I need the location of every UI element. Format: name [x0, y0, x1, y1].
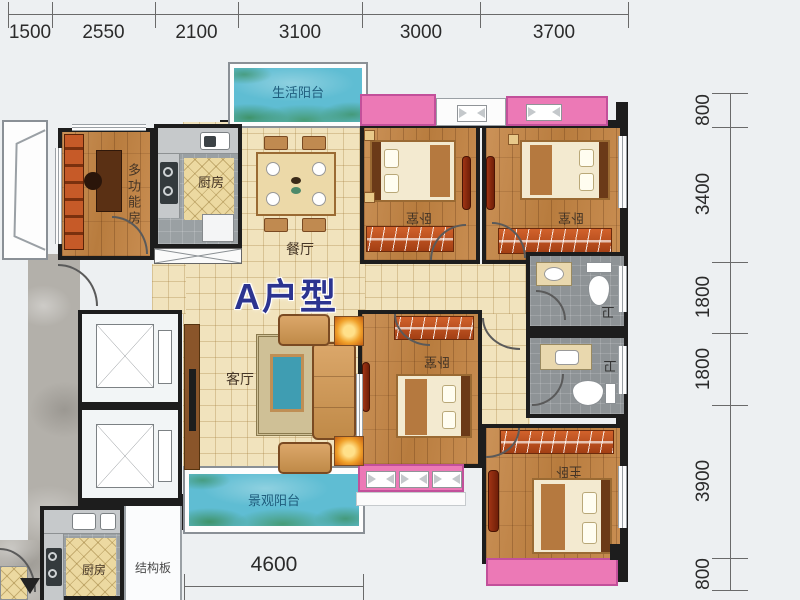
dim-right-label: 800: [693, 84, 715, 136]
pillow: [384, 149, 399, 168]
dim-right-label: 1800: [693, 343, 715, 395]
window-glyph: [526, 104, 562, 121]
elevator-cross: [97, 425, 153, 487]
bed: [520, 140, 610, 200]
window-glyph: [366, 471, 396, 488]
pillow: [442, 385, 456, 403]
dim-right-tick: [712, 333, 748, 334]
stove: [160, 162, 178, 204]
bedroom-c: 卧室: [358, 310, 482, 468]
window: [618, 346, 627, 394]
bed-runner: [530, 145, 552, 195]
entry-floor: [152, 264, 186, 314]
window: [72, 124, 146, 131]
coffee-table: [270, 354, 304, 412]
plate: [266, 192, 280, 206]
dim-right-tick: [712, 93, 748, 94]
kitchen2-sink: [72, 513, 96, 530]
bedroom-a-cabinet: [462, 156, 471, 210]
window-glyph: [432, 471, 462, 488]
bed: [532, 478, 612, 554]
dim-top-label: 3700: [480, 22, 628, 44]
master-bedroom-label: 主卧: [546, 464, 592, 478]
pillow: [582, 492, 597, 514]
dim-top-line: [8, 14, 628, 15]
pillow: [442, 411, 456, 429]
stove-burner: [48, 552, 57, 561]
bath1-sink-counter: [536, 262, 572, 286]
bath2-sink-counter: [540, 344, 592, 370]
dim-top-tick: [628, 2, 629, 28]
toilet-bowl: [588, 275, 610, 306]
dim-right-tick: [712, 405, 748, 406]
nightstand: [364, 192, 375, 203]
structure-slab-label: 结构板: [126, 562, 180, 575]
plate: [312, 192, 326, 206]
nightstand: [364, 130, 375, 141]
bedroom-a-bay-window: [360, 94, 436, 126]
stove-burner: [163, 167, 173, 177]
pillow: [579, 173, 594, 191]
dim-bottom-label: 4600: [184, 554, 364, 578]
stove-burner: [48, 569, 57, 578]
multi-function-room: 多功能房: [58, 128, 154, 260]
elevator-car: [96, 424, 154, 488]
elevator-car: [96, 324, 154, 388]
multi-function-door-arc: [112, 216, 148, 254]
bedroom-b-label: 卧室: [548, 210, 594, 224]
kitchen-neighbor-label: 厨房: [70, 564, 118, 577]
bath2-basin: [555, 350, 579, 365]
window: [618, 266, 627, 312]
kitchen-sink: [200, 132, 230, 150]
top-window-gap: [436, 98, 506, 126]
desk-chair: [84, 172, 102, 190]
dining-table: [256, 152, 336, 216]
dining-chair: [264, 218, 288, 232]
toilet-bowl: [572, 380, 604, 406]
toilet-tank: [586, 262, 612, 273]
bedroom-b-bay-window: [506, 96, 608, 126]
bath1-door-arc: [536, 290, 566, 320]
master-bedroom: 主卧: [482, 424, 624, 564]
bedroom-b: 卧室: [482, 124, 624, 264]
side-table-lamp: [334, 316, 364, 346]
plate: [312, 162, 326, 176]
floor-plan-canvas: 1500 2550 2100 3100 3000 3700 800 3400 1…: [0, 0, 800, 600]
corridor-floor: [365, 264, 530, 314]
elevator-cross: [97, 325, 153, 387]
stove-burner: [163, 186, 173, 196]
dim-right-label: 1800: [693, 271, 715, 323]
elevator-door: [158, 330, 172, 384]
kitchen2-sink: [100, 513, 116, 530]
bathroom-top-label: 卫: [598, 304, 618, 318]
stove2: [46, 548, 62, 586]
kitchen-flue: [154, 248, 242, 264]
life-balcony-label: 生活阳台: [230, 86, 366, 100]
nightstand: [508, 134, 519, 145]
dim-right-tick: [712, 558, 748, 559]
window: [356, 374, 363, 436]
bathroom-top: 卫: [526, 252, 628, 330]
bathroom-bottom-label: 卫: [600, 358, 620, 372]
dim-top-label: 1500: [8, 22, 52, 44]
pillow: [384, 174, 399, 193]
sofa-main: [312, 342, 356, 440]
dim-right-label: 800: [693, 548, 715, 600]
kitchen-neighbor: 厨房: [40, 506, 124, 600]
fridge: [202, 214, 234, 242]
living-label: 客厅: [212, 372, 268, 387]
side-table-lamp: [334, 436, 364, 466]
bedroom-c-bay-window: [358, 464, 464, 492]
structure-slab: 结构板: [124, 506, 182, 600]
tv-cabinet: [184, 324, 200, 470]
bath2-door-arc: [532, 374, 564, 406]
dining-chair: [302, 136, 326, 150]
dim-right-tick: [712, 262, 748, 263]
bedroom-c-label: 卧室: [414, 354, 460, 368]
bath1-basin: [544, 267, 564, 281]
elevator-door: [158, 430, 172, 482]
stairwell-window: [2, 120, 48, 260]
toilet-tank: [605, 383, 616, 404]
elevator-shaft-1: [78, 310, 182, 406]
bed: [396, 374, 472, 438]
master-bay-window: [486, 558, 618, 586]
master-dresser: [488, 470, 499, 532]
view-balcony-label: 景观阳台: [185, 494, 363, 508]
window: [618, 466, 627, 528]
dim-bottom-tick: [363, 574, 364, 600]
dim-top-label: 2550: [52, 22, 155, 44]
stairwell-window-glass: [4, 122, 46, 258]
bedroom-c-cabinet: [362, 362, 370, 412]
dim-right-label: 3400: [693, 168, 715, 220]
dim-bottom-tick: [184, 574, 185, 600]
wall-step: [610, 544, 626, 560]
dim-top-label: 3100: [238, 22, 362, 44]
window: [618, 136, 627, 208]
sofa-armchair: [278, 442, 332, 474]
bed: [370, 140, 456, 202]
unit-type-title: A户型: [208, 268, 364, 320]
bed-runner: [430, 145, 450, 197]
flue-cross: [155, 249, 241, 263]
pillow: [579, 149, 594, 167]
dining-chair: [264, 136, 288, 150]
kitchen-main: 厨房: [154, 124, 242, 248]
wall-bath-divider: [526, 326, 628, 334]
dim-top-label: 3000: [362, 22, 480, 44]
bedroom-a: 卧室: [360, 124, 480, 264]
dining-chair: [302, 218, 326, 232]
pillow: [582, 522, 597, 544]
bedroom-c-bay-sill: [356, 492, 466, 506]
kitchen-main-label: 厨房: [186, 176, 236, 190]
window-glyph: [399, 471, 429, 488]
window-glyph: [457, 105, 487, 122]
dim-right-line: [730, 93, 731, 590]
bed-headboard: [461, 376, 470, 436]
dim-right-label: 3900: [693, 455, 715, 507]
center-dish: [291, 177, 301, 184]
dim-top-label: 2100: [155, 22, 238, 44]
elevator-shaft-2: [78, 406, 182, 502]
center-dish: [291, 187, 301, 194]
tv: [189, 369, 196, 431]
bedroom-a-label: 卧室: [396, 210, 442, 224]
dim-bottom-line: [184, 586, 364, 587]
direction-triangle: [20, 578, 40, 594]
view-balcony: 景观阳台: [183, 466, 365, 534]
dining-label: 餐厅: [270, 242, 330, 257]
bookshelf: [64, 134, 84, 250]
bed-headboard: [601, 480, 610, 552]
dim-right-tick: [712, 590, 748, 591]
sink-basin: [204, 136, 216, 147]
bed-headboard: [599, 142, 608, 198]
dim-right-tick: [712, 127, 748, 128]
life-balcony: 生活阳台: [228, 62, 368, 128]
plate: [266, 162, 280, 176]
bed-runner: [405, 379, 427, 435]
entry-door-arc: [58, 264, 98, 306]
bedroom-b-cabinet: [486, 156, 495, 210]
window: [55, 148, 62, 244]
bathroom-bottom: 卫: [526, 334, 628, 418]
bed-runner: [541, 484, 565, 550]
bedroom-c-door-arc: [394, 314, 430, 346]
